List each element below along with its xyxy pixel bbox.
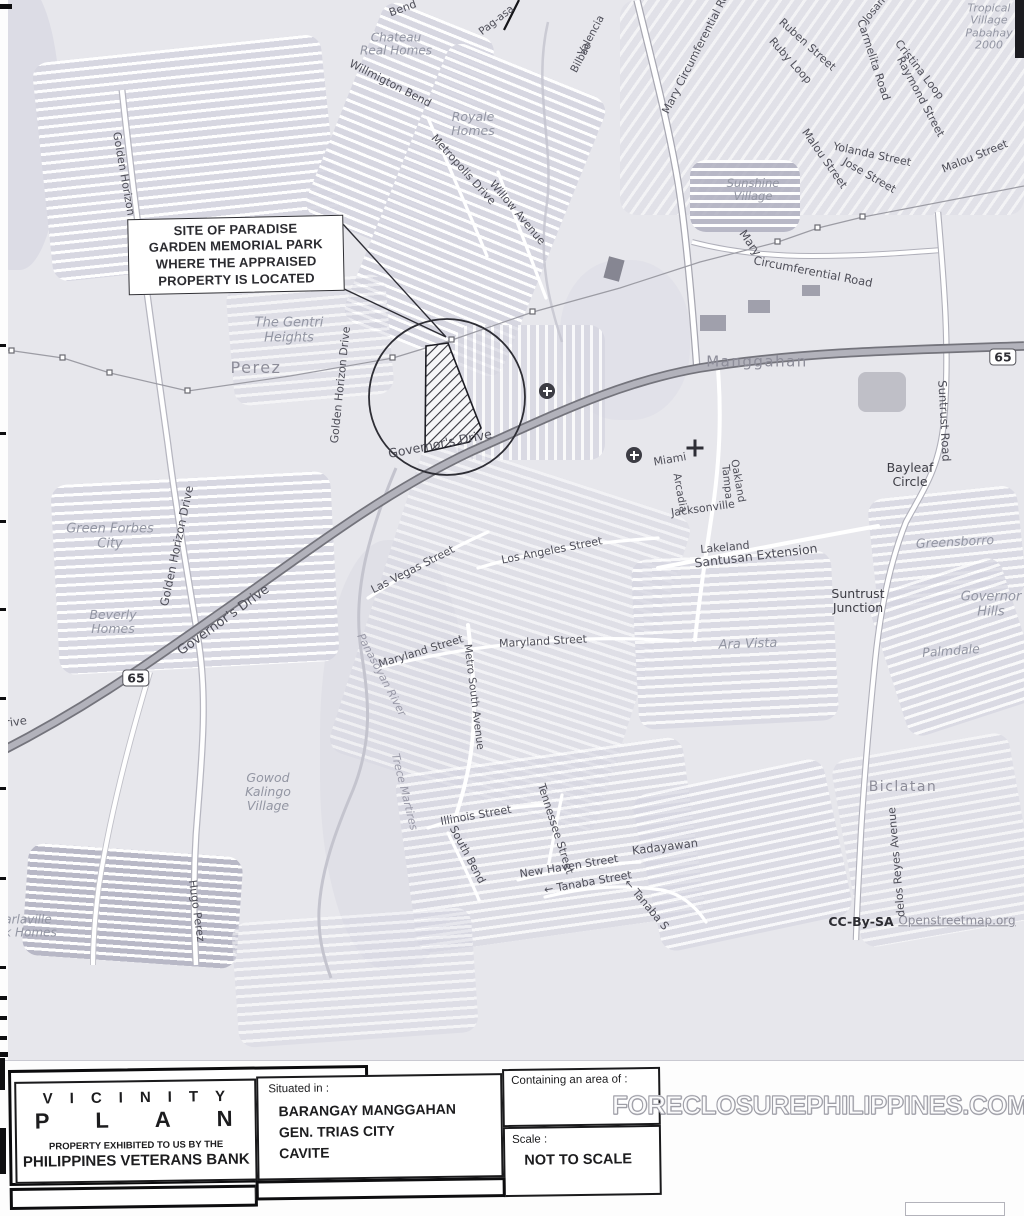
map-label: Palmdale	[922, 642, 980, 660]
attribution-source-link: Openstreetmap.org	[898, 914, 1015, 927]
map-label: ← Tanaba S	[621, 877, 670, 933]
scan-mark	[0, 996, 7, 1000]
map-label: arlaville rk Homes	[0, 914, 57, 941]
scan-mark	[0, 4, 12, 9]
watermark: FORECLOSUREPHILIPPINES.COM	[612, 1090, 1024, 1121]
map-label: Maryland Street	[377, 633, 465, 670]
map-label: Malou Street	[940, 138, 1009, 176]
map-labels: CC-By-SA Openstreetmap.org BendChateau R…	[0, 0, 1024, 1060]
scan-mark	[0, 966, 6, 969]
map-label: Governor Hills	[961, 590, 1022, 619]
map-label: Golden Horizon Drive	[158, 485, 196, 608]
map-label: Malou Street	[799, 127, 849, 191]
map-label: Biclatan	[869, 780, 938, 796]
map-label: South Bend	[447, 824, 488, 886]
map-label: Gowod Kalingo Village	[245, 771, 291, 813]
map-label: Bilbao	[569, 41, 595, 75]
map-label: Las Vegas Street	[369, 544, 456, 597]
scale-cell: Scale : NOT TO SCALE	[503, 1125, 662, 1197]
map-label: Suntrust Junction	[831, 587, 884, 615]
situated-in-cell: Situated in : BARANGAY MANGGAHAN GEN. TR…	[256, 1073, 503, 1180]
map-label: Maryland Street	[499, 634, 587, 651]
scan-mark	[0, 787, 6, 790]
scan-corner-mark	[1015, 0, 1024, 58]
scan-mark	[0, 1016, 7, 1020]
map-label: The Gentri Heights	[255, 316, 324, 345]
map-label: Bayleaf Circle	[887, 461, 934, 489]
bank-name: PHILIPPINES VETERANS BANK	[17, 1151, 255, 1171]
situated-line: CAVITE	[279, 1140, 491, 1164]
scan-mark	[0, 1052, 8, 1057]
route-shield: 65	[122, 670, 149, 687]
map-label: Los Angeles Street	[500, 535, 603, 567]
map-label: Trece Martires	[389, 752, 420, 831]
map-label: Sunshine Village	[727, 177, 780, 203]
scan-mark	[0, 1036, 7, 1040]
map-label: Willmigton Bend	[347, 58, 433, 110]
map-label: Manggahan	[706, 354, 808, 371]
map-label: Mary Circumferential Road	[660, 0, 737, 116]
callout-line: PROPERTY IS LOCATED	[158, 270, 315, 290]
title-block: VICINITY PLAN PROPERTY EXHIBITED TO US B…	[8, 1056, 1022, 1212]
map-label: delos Reyes Avenue	[886, 807, 908, 918]
map-label: Willow Avenue	[487, 178, 548, 247]
area-label: Containing an area of :	[511, 1073, 651, 1087]
map-label: Perez	[231, 359, 282, 377]
scan-mark	[0, 1058, 5, 1090]
scan-mark	[0, 877, 6, 880]
map-label: Beverly Homes	[89, 608, 136, 636]
scale-label: Scale :	[512, 1132, 652, 1146]
callout-box: SITE OF PARADISE GARDEN MEMORIAL PARK WH…	[127, 215, 345, 296]
map-label: Golden Horizon Drive	[329, 326, 354, 444]
route-shield: 65	[989, 349, 1016, 366]
situated-line: BARANGAY MANGGAHAN	[278, 1098, 490, 1122]
plan-title-word2: PLAN	[17, 1106, 255, 1135]
map-label: Green Forbes City	[66, 522, 154, 551]
map-label: Governor's Drive	[387, 427, 493, 461]
empty-row-box	[256, 1177, 506, 1200]
scan-artifact-box	[905, 1202, 1005, 1216]
map-label: Tropical Village Pabahay 2000	[965, 2, 1012, 51]
attribution-license: CC-By-SA	[828, 915, 893, 929]
health-facility-icon	[626, 447, 642, 463]
title-cell: VICINITY PLAN PROPERTY EXHIBITED TO US B…	[14, 1079, 257, 1184]
map-label: Ara Vista	[718, 637, 777, 654]
scan-mark	[0, 432, 6, 435]
map-label: Hugo Perez	[186, 879, 207, 942]
church-cross-icon	[687, 440, 704, 457]
map-label: Miami	[653, 451, 688, 469]
map-label: Illinois Street	[440, 804, 513, 829]
vicinity-map: CC-By-SA Openstreetmap.org BendChateau R…	[0, 0, 1024, 1061]
empty-row-box	[10, 1185, 258, 1210]
page-margin	[0, 0, 8, 1060]
situated-line: GEN. TRIAS CITY	[279, 1119, 491, 1143]
map-label: Metropolis Drive	[428, 132, 497, 207]
plan-title-word1: VICINITY	[16, 1088, 254, 1108]
situated-in-label: Situated in :	[268, 1080, 490, 1095]
health-facility-icon	[539, 383, 555, 399]
scan-mark	[0, 608, 6, 611]
map-label: Panasoyan River	[354, 632, 408, 719]
scale-value: NOT TO SCALE	[512, 1151, 652, 1169]
map-label: Chateau Real Homes	[360, 32, 432, 59]
map-label: Pag-asa	[477, 4, 517, 39]
map-label: Carmelita Road	[854, 18, 892, 102]
map-label: Governor's Drive	[175, 583, 272, 659]
map-label: Suntrust Road	[935, 380, 952, 462]
map-label: Metro South Avenue	[461, 644, 486, 751]
scan-mark	[0, 697, 6, 700]
map-label: Greensborro	[916, 533, 995, 551]
map-label: Bend	[388, 0, 419, 20]
map-label: Royale Homes	[451, 110, 494, 138]
scan-mark	[0, 344, 6, 347]
map-label: Circumferential Road	[752, 254, 873, 290]
map-label: Tampa	[718, 464, 733, 499]
map-label: Kadayawan	[631, 837, 698, 858]
scan-mark	[0, 1128, 6, 1174]
scan-mark	[0, 520, 6, 523]
